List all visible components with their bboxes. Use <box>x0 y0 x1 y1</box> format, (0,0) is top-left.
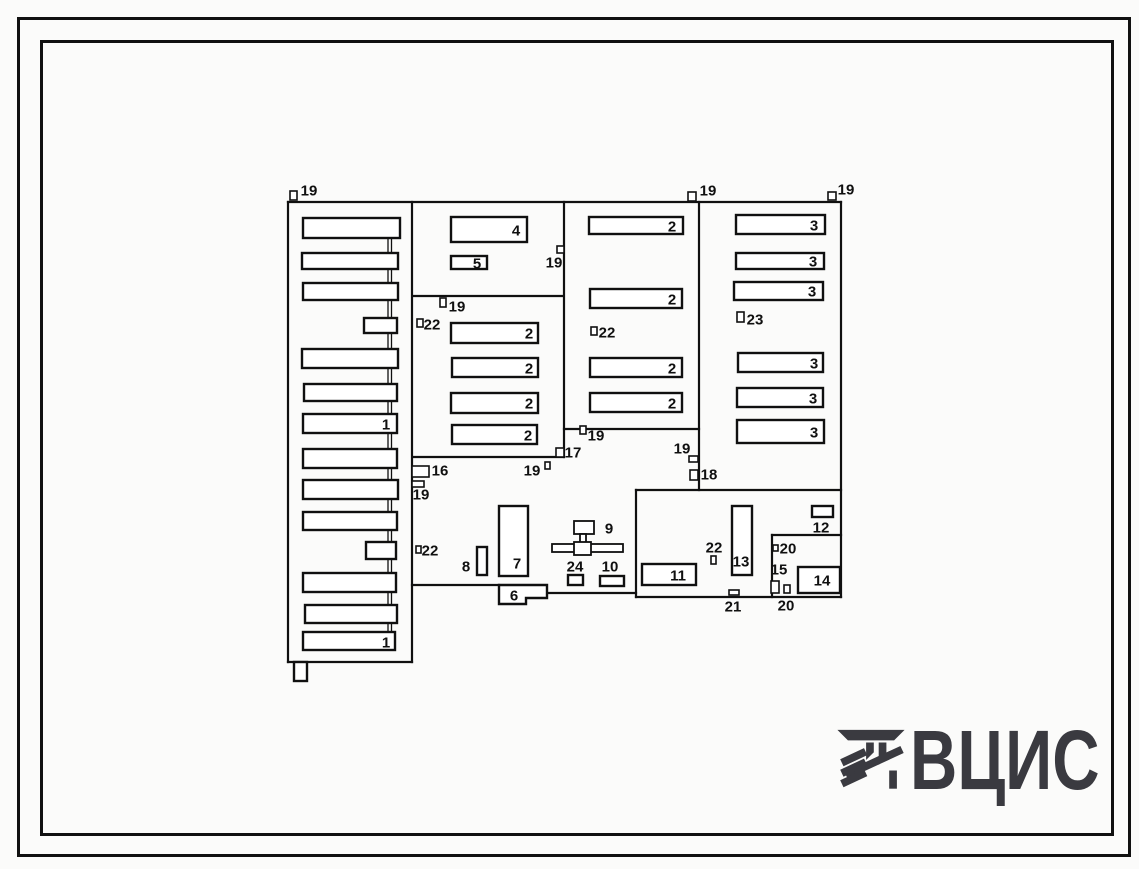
building-10 <box>600 576 624 586</box>
building-label-11: 11 <box>670 567 686 584</box>
marker-label-19: 19 <box>524 462 541 479</box>
marker-label-19: 19 <box>546 254 563 271</box>
building-bar <box>305 605 397 623</box>
marker-19 <box>828 192 836 200</box>
building-label-6: 6 <box>510 587 518 604</box>
marker-15 <box>771 581 779 593</box>
building-label-2: 2 <box>525 395 533 412</box>
building-label-12: 12 <box>813 519 830 536</box>
marker-22 <box>591 327 597 335</box>
marker-22 <box>416 546 421 553</box>
building-label-1: 1 <box>382 634 390 651</box>
marker-label-15: 15 <box>771 561 788 578</box>
building-label-3: 3 <box>810 355 818 372</box>
building-label-24: 24 <box>567 558 584 575</box>
building-11 <box>642 564 696 585</box>
building-bar <box>303 449 397 468</box>
marker-20 <box>773 545 778 551</box>
building-12 <box>812 506 833 517</box>
marker-label-20: 20 <box>778 597 795 614</box>
marker-label-22: 22 <box>424 316 441 333</box>
marker-label-16: 16 <box>432 462 449 479</box>
building-bar <box>303 218 400 238</box>
marker-label-22: 22 <box>422 542 439 559</box>
building-label-2: 2 <box>525 325 533 342</box>
marker-20 <box>784 585 790 593</box>
marker-label-19: 19 <box>413 486 430 503</box>
marker-label-19: 19 <box>301 182 318 199</box>
building-bar <box>294 662 307 681</box>
marker-19 <box>580 426 586 434</box>
building-8 <box>477 547 487 575</box>
marker-label-19: 19 <box>674 440 691 457</box>
building-bar <box>302 349 398 368</box>
building-label-5: 5 <box>473 255 481 272</box>
building-label-3: 3 <box>810 217 818 234</box>
building-bar <box>366 542 396 559</box>
marker-label-19: 19 <box>588 427 605 444</box>
building-label-2: 2 <box>668 291 676 308</box>
marker-label-21: 21 <box>725 598 742 615</box>
building-5 <box>451 256 487 269</box>
marker-label-22: 22 <box>706 539 723 556</box>
building-label-2: 2 <box>525 360 533 377</box>
marker-23 <box>737 312 744 322</box>
logo-emblem-icon <box>836 726 906 794</box>
building-label-2: 2 <box>668 395 676 412</box>
building-label-13: 13 <box>733 553 750 570</box>
building-label-3: 3 <box>809 253 817 270</box>
building-6 <box>499 585 547 604</box>
building-label-1: 1 <box>382 416 390 433</box>
structure-9 <box>574 521 594 534</box>
marker-19 <box>689 456 698 462</box>
marker-22 <box>417 319 423 327</box>
marker-label-17: 17 <box>565 444 582 461</box>
marker-label-19: 19 <box>838 181 855 198</box>
building-label-2: 2 <box>668 218 676 235</box>
marker-label-20: 20 <box>780 540 797 557</box>
marker-18 <box>690 470 698 480</box>
scanned-drawing-sheet: { "logo": { "text": "ВЦИС", "color": "#3… <box>0 0 1139 869</box>
structure-label-9: 9 <box>605 520 613 537</box>
marker-label-22: 22 <box>599 324 616 341</box>
building-bar <box>304 384 397 401</box>
marker-22 <box>711 556 716 564</box>
building-bar <box>364 318 397 333</box>
building-24 <box>568 575 583 585</box>
building-label-3: 3 <box>809 390 817 407</box>
building-label-4: 4 <box>512 222 521 239</box>
building-label-10: 10 <box>602 558 619 575</box>
marker-19 <box>290 191 297 200</box>
marker-17 <box>556 448 564 457</box>
marker-label-19: 19 <box>700 182 717 199</box>
marker-21 <box>729 590 739 595</box>
building-label-2: 2 <box>524 427 532 444</box>
building-bar <box>303 480 398 499</box>
building-label-2: 2 <box>668 360 676 377</box>
marker-label-18: 18 <box>701 466 718 483</box>
building-bar <box>303 512 397 530</box>
marker-19 <box>440 298 446 307</box>
logo-text: ВЦИС <box>910 718 1100 802</box>
building-label-3: 3 <box>808 283 816 300</box>
building-label-3: 3 <box>810 424 818 441</box>
building-bar <box>303 283 398 300</box>
marker-label-23: 23 <box>747 311 764 328</box>
building-label-8: 8 <box>462 558 470 575</box>
building-label-7: 7 <box>513 555 521 572</box>
marker-19 <box>545 462 550 469</box>
marker-16 <box>412 466 429 477</box>
marker-19 <box>557 246 564 253</box>
structure-9 <box>574 542 591 555</box>
marker-19 <box>688 192 696 201</box>
building-label-14: 14 <box>814 572 831 589</box>
logo: ВЦИС <box>836 722 1086 814</box>
building-bar <box>303 573 396 592</box>
building-bar <box>302 253 398 269</box>
marker-label-19: 19 <box>449 298 466 315</box>
